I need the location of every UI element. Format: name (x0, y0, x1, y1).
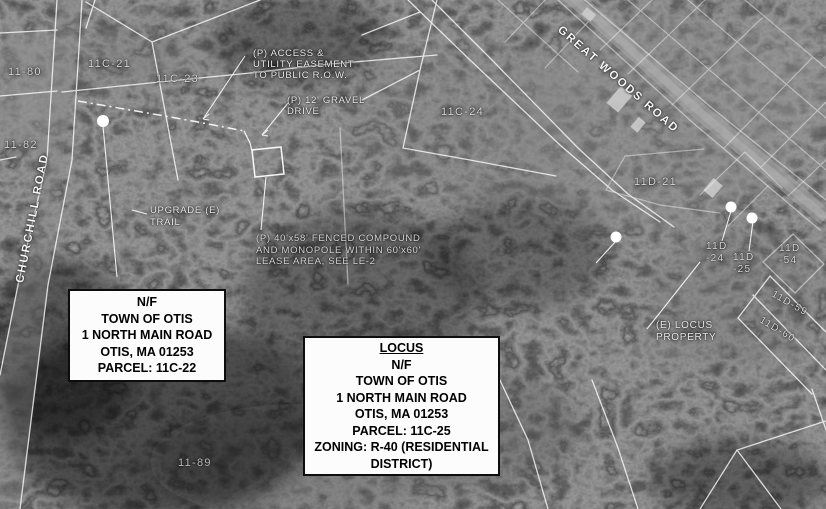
parcel-label-11-80: 11-80 (8, 66, 42, 78)
locus-property-annotation: (E) LOCUS PROPERTY (656, 320, 716, 344)
info-line: 1 NORTH MAIN ROAD (70, 327, 224, 344)
parcel-label-11-89: 11-89 (178, 457, 212, 469)
info-line: N/F (70, 294, 224, 311)
info-line: PARCEL: 11C-22 (70, 360, 224, 377)
parcel-label-11c-23: 11C-23 (156, 73, 199, 85)
locus-box-title: LOCUS (305, 340, 498, 357)
info-line: TOWN OF OTIS (70, 311, 224, 328)
parcel-label-11d-25: 11D -25 (733, 252, 755, 276)
info-line: OTIS, MA 01253 (70, 344, 224, 361)
parcel-label-11d-21: 11D-21 (634, 176, 677, 188)
gravel-drive-annotation: (P) 12' GRAVEL DRIVE (287, 95, 365, 117)
info-line: N/F (305, 357, 498, 374)
info-line: ZONING: R-40 (RESIDENTIAL (305, 439, 498, 456)
survey-marker-dot (726, 202, 737, 213)
survey-marker-dot (97, 115, 109, 127)
parcel-label-11c-21: 11C-21 (88, 58, 131, 70)
locus-info-box: LOCUS N/F TOWN OF OTIS 1 NORTH MAIN ROAD… (303, 336, 500, 476)
survey-marker-dot (747, 213, 758, 224)
fenced-compound-annotation: (P) 40'x58' FENCED COMPOUND AND MONOPOLE… (256, 233, 421, 268)
info-line: OTIS, MA 01253 (305, 406, 498, 423)
parcel-label-11d-54: 11D -54 (779, 243, 801, 267)
parcel-label-11c-24: 11C-24 (441, 106, 484, 118)
aerial-survey-map: 11-80 11C-21 11C-23 11-82 11C-24 11D-21 … (0, 0, 826, 509)
survey-marker-dot (611, 232, 622, 243)
parcel-label-11d-24: 11D -24 (706, 241, 728, 265)
info-line: 1 NORTH MAIN ROAD (305, 390, 498, 407)
info-line: TOWN OF OTIS (305, 373, 498, 390)
upgrade-trail-annotation: UPGRADE (E) TRAIL (150, 205, 220, 229)
parcel-11c22-info-box: N/F TOWN OF OTIS 1 NORTH MAIN ROAD OTIS,… (68, 289, 226, 382)
info-line: DISTRICT) (305, 456, 498, 473)
parcel-label-11-82: 11-82 (4, 139, 38, 151)
info-line: PARCEL: 11C-25 (305, 423, 498, 440)
access-easement-annotation: (P) ACCESS & UTILITY EASEMENT TO PUBLIC … (253, 48, 354, 81)
